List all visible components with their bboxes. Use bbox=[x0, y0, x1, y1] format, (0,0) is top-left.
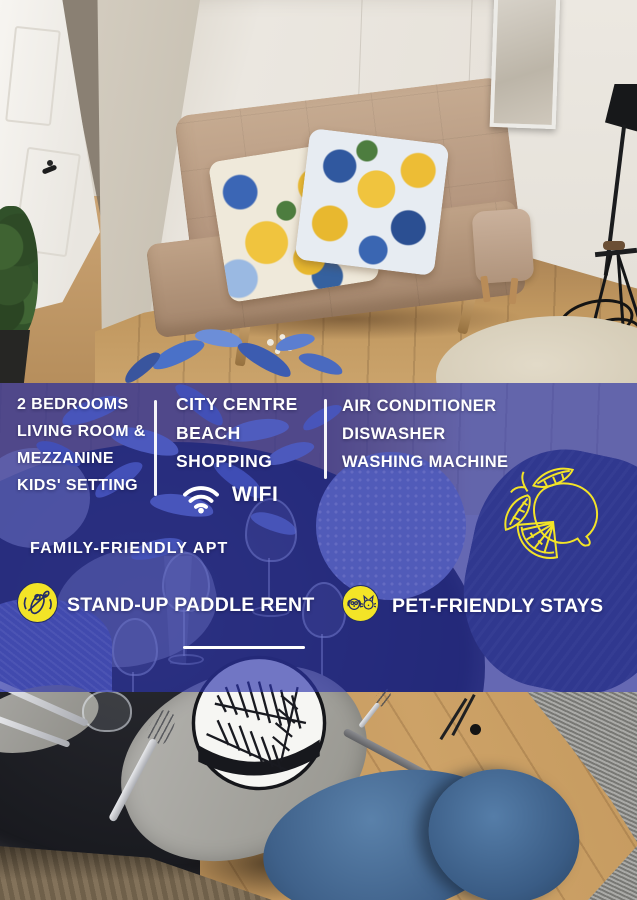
amenity-line: BEACH bbox=[176, 419, 298, 448]
amenity-line: WASHING MACHINE bbox=[342, 448, 508, 476]
divider-rule bbox=[183, 646, 305, 649]
amenity-line: LIVING ROOM & bbox=[17, 418, 146, 445]
amenity-line: DISWASHER bbox=[342, 420, 508, 448]
lemon-illustration bbox=[498, 462, 616, 570]
table-leg-cap bbox=[470, 724, 481, 735]
amenity-line: CITY CENTRE bbox=[176, 390, 298, 419]
amenity-line: MEZZANINE bbox=[17, 445, 146, 472]
amenity-line: SHOPPING bbox=[176, 447, 298, 476]
stand-up-paddle-icon bbox=[17, 582, 58, 623]
amenities-column-middle: CITY CENTRE BEACH SHOPPING bbox=[176, 390, 298, 476]
feature-label: STAND-UP PADDLE RENT bbox=[67, 594, 315, 617]
wifi-label: WIFI bbox=[232, 483, 278, 507]
wine-glass-base bbox=[82, 690, 132, 732]
rental-listing-photo: 2 BEDROOMS LIVING ROOM & MEZZANINE KIDS'… bbox=[0, 0, 637, 900]
column-divider bbox=[324, 399, 327, 479]
feature-label: PET-FRIENDLY STAYS bbox=[392, 595, 603, 618]
amenity-line: KIDS' SETTING bbox=[17, 472, 146, 499]
amenity-line: AIR CONDITIONER bbox=[342, 392, 508, 420]
shelf-items bbox=[603, 241, 625, 250]
pet-icon bbox=[342, 585, 379, 622]
ottoman bbox=[472, 208, 535, 284]
lemon-pillow-right bbox=[294, 128, 449, 276]
wifi-icon bbox=[178, 482, 224, 514]
amenities-column-right: AIR CONDITIONER DISWASHER WASHING MACHIN… bbox=[342, 392, 508, 476]
amenities-column-left: 2 BEDROOMS LIVING ROOM & MEZZANINE KIDS'… bbox=[17, 391, 146, 499]
family-friendly-label: FAMILY-FRIENDLY APT bbox=[30, 540, 229, 558]
amenity-line: 2 BEDROOMS bbox=[17, 391, 146, 418]
wall-mirror bbox=[490, 0, 561, 129]
column-divider bbox=[154, 400, 157, 496]
